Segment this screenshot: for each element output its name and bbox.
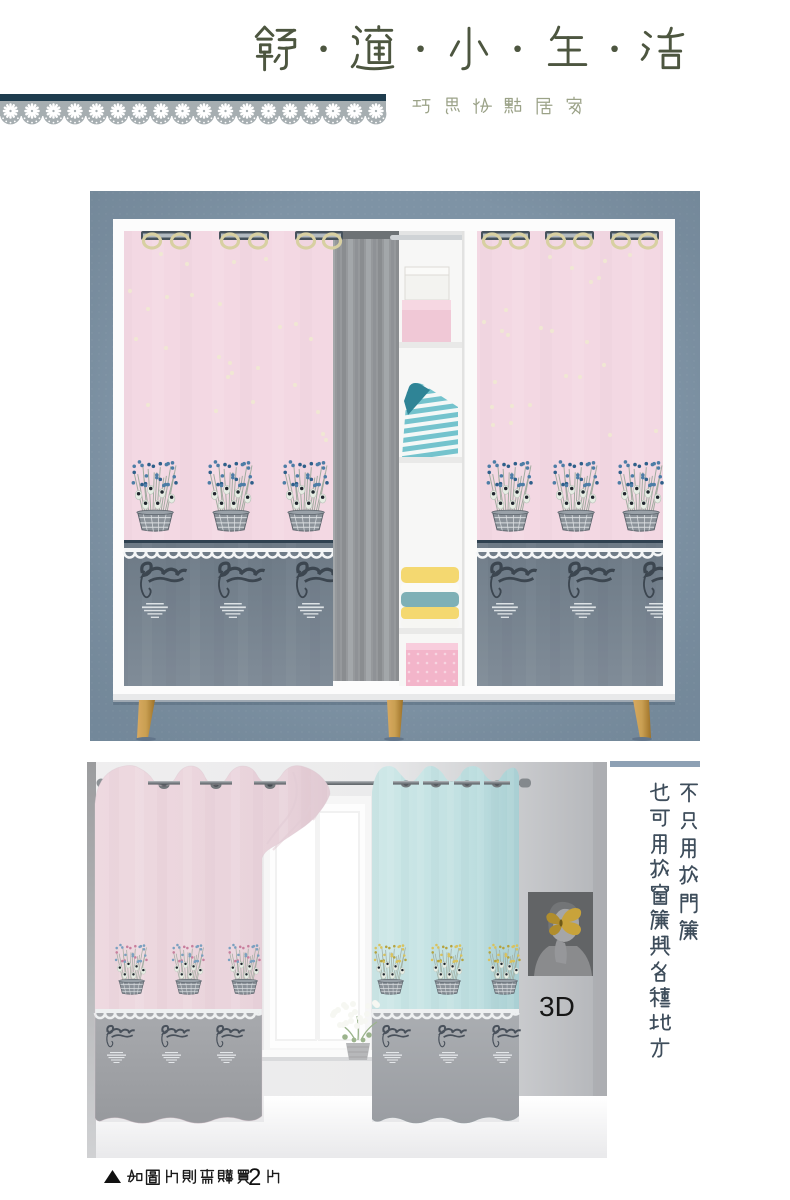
svg-text:3D: 3D (539, 991, 575, 1022)
svg-text:2: 2 (248, 1164, 261, 1191)
